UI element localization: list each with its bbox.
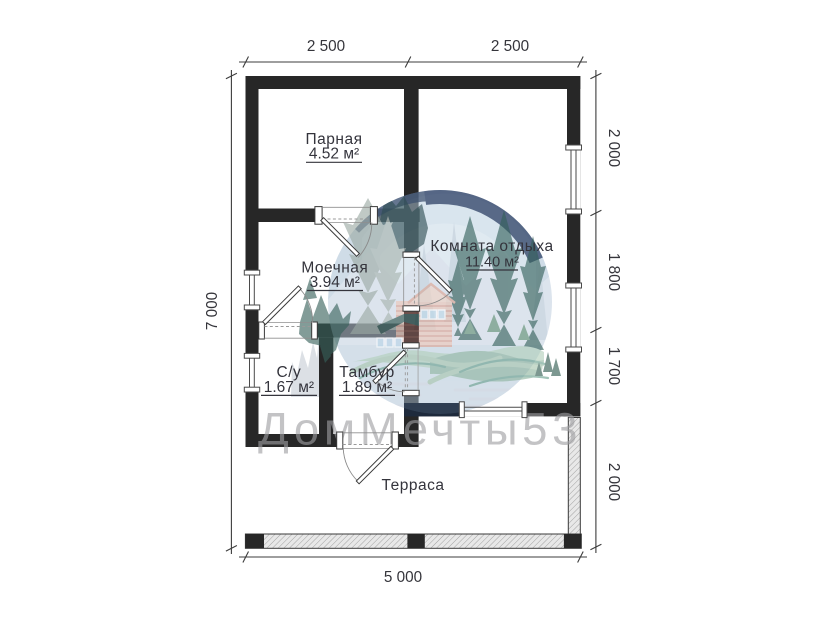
svg-text:Комната отдыха: Комната отдыха — [430, 238, 553, 255]
svg-text:11.40 м²: 11.40 м² — [465, 255, 519, 271]
svg-text:1 700: 1 700 — [605, 347, 622, 385]
svg-text:2 500: 2 500 — [491, 38, 529, 55]
svg-text:2 000: 2 000 — [605, 129, 622, 167]
svg-text:1.89 м²: 1.89 м² — [342, 379, 392, 396]
svg-text:2 500: 2 500 — [307, 38, 345, 55]
svg-text:3.94 м²: 3.94 м² — [310, 274, 360, 291]
svg-text:2 000: 2 000 — [605, 463, 622, 501]
svg-text:Терраса: Терраса — [382, 477, 445, 494]
svg-text:7 000: 7 000 — [204, 292, 221, 330]
svg-text:5 000: 5 000 — [384, 569, 422, 586]
svg-text:1.67 м²: 1.67 м² — [264, 379, 314, 396]
svg-text:ДомМечты53: ДомМечты53 — [258, 404, 582, 455]
svg-text:4.52 м²: 4.52 м² — [309, 146, 359, 163]
svg-text:1 800: 1 800 — [605, 253, 622, 291]
